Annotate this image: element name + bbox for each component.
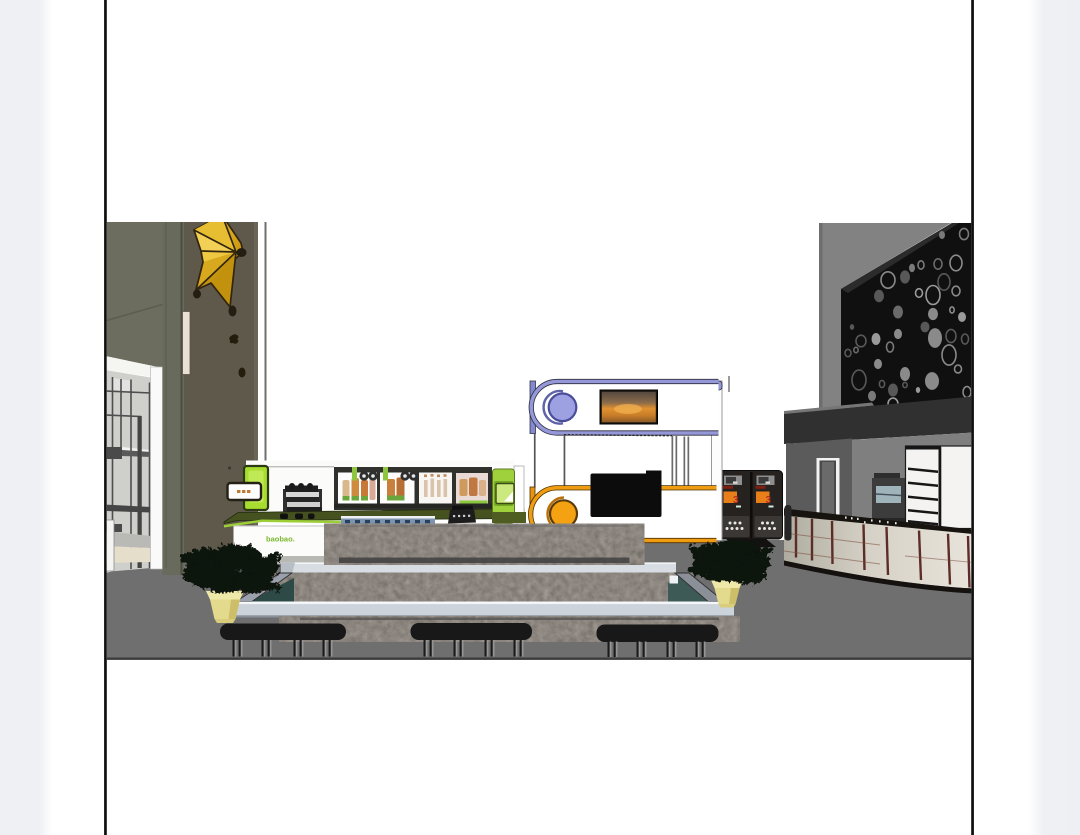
svg-text:3: 3 — [733, 495, 739, 506]
svg-text:baobao.: baobao. — [266, 535, 295, 544]
